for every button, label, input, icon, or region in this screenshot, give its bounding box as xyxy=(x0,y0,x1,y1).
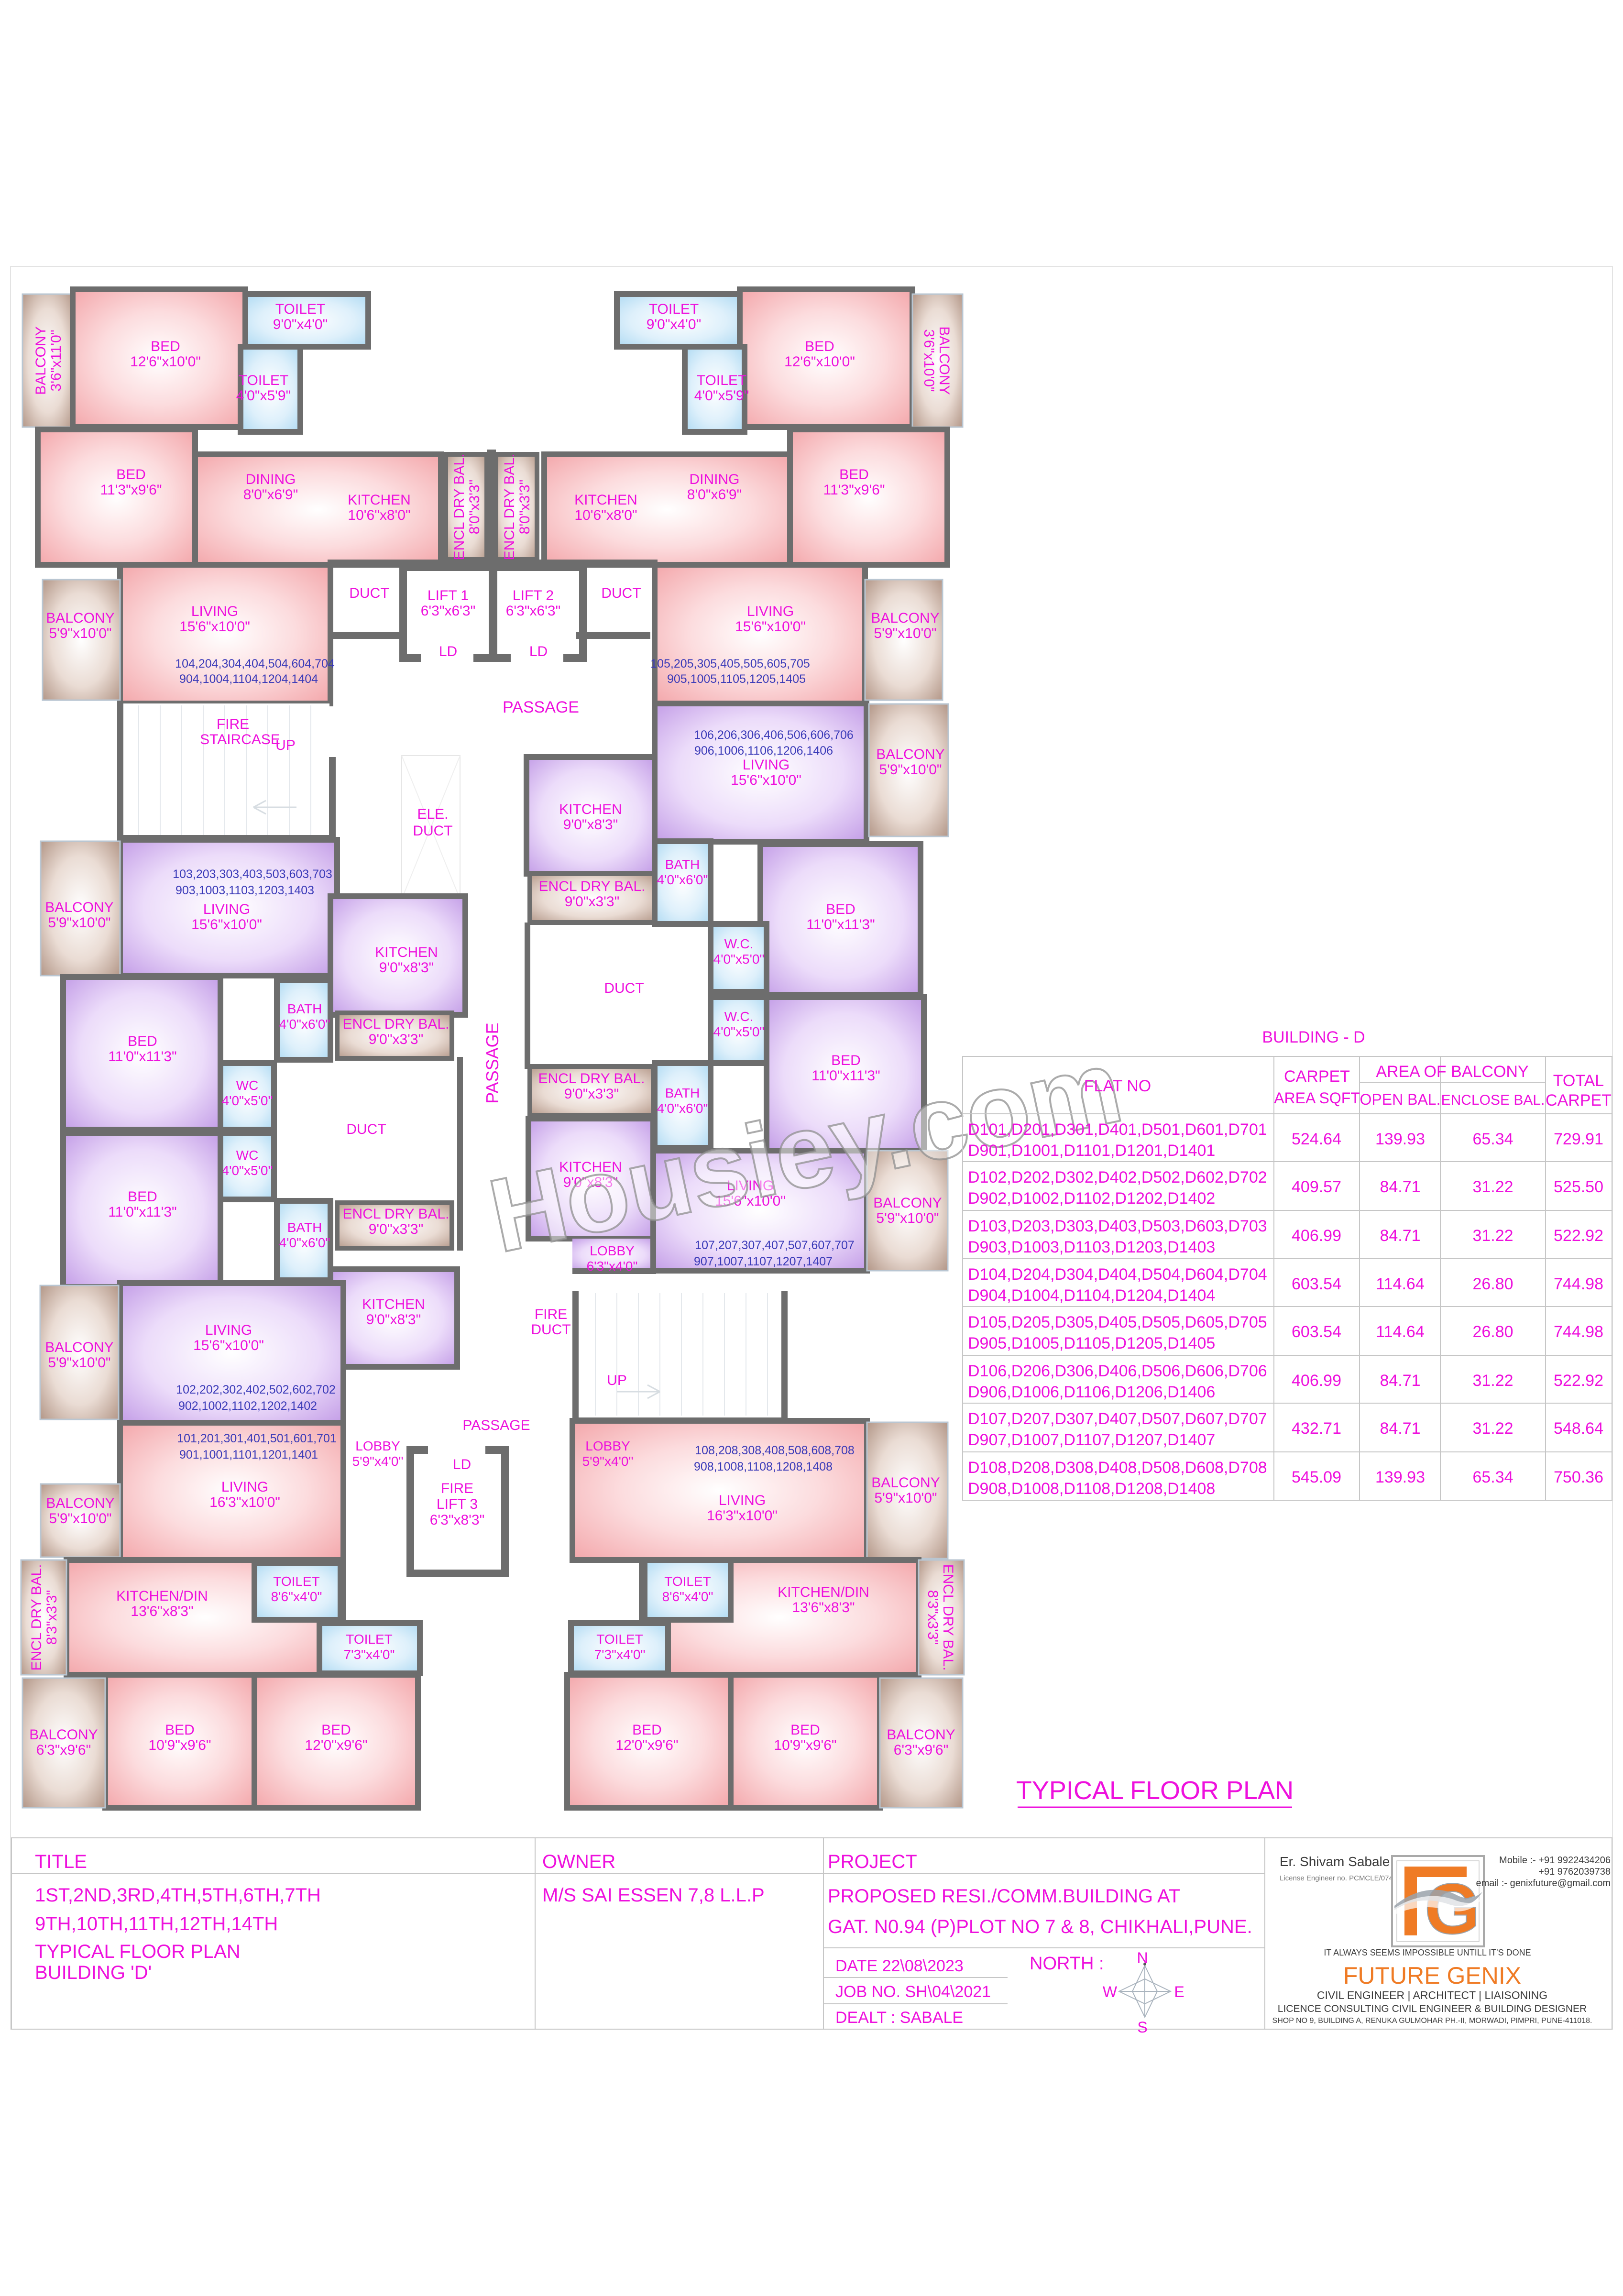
svg-text:Mobile :- +91 9922434206: Mobile :- +91 9922434206 xyxy=(1499,1855,1611,1866)
svg-text:101,201,301,401,501,601,701: 101,201,301,401,501,601,701 xyxy=(177,1432,337,1445)
svg-text:TOILET: TOILET xyxy=(697,373,746,388)
svg-text:5'9"x10'0": 5'9"x10'0" xyxy=(874,626,936,641)
svg-text:105,205,305,405,505,605,705: 105,205,305,405,505,605,705 xyxy=(650,657,810,670)
svg-text:FLAT NO: FLAT NO xyxy=(1084,1077,1151,1095)
svg-text:BALCONY: BALCONY xyxy=(887,1727,955,1743)
svg-text:DUCT: DUCT xyxy=(531,1322,570,1338)
svg-text:AREA OF BALCONY: AREA OF BALCONY xyxy=(1376,1063,1528,1081)
svg-text:139.93: 139.93 xyxy=(1375,1130,1425,1148)
svg-text:8'3"x3'3": 8'3"x3'3" xyxy=(925,1590,941,1645)
svg-text:D901,D1001,D1101,D1201,D1401: D901,D1001,D1101,D1201,D1401 xyxy=(968,1142,1215,1160)
svg-text:DINING: DINING xyxy=(690,472,740,487)
svg-text:GAT. N0.94 (P)PLOT NO 7 & 8, C: GAT. N0.94 (P)PLOT NO 7 & 8, CHIKHALI,PU… xyxy=(828,1916,1252,1937)
svg-text:15'6"x10'0": 15'6"x10'0" xyxy=(193,1338,264,1353)
svg-text:CARPET: CARPET xyxy=(1546,1091,1612,1110)
svg-text:114.64: 114.64 xyxy=(1376,1275,1424,1293)
svg-text:AREA SQFT: AREA SQFT xyxy=(1274,1089,1360,1107)
svg-text:9'0"x3'3": 9'0"x3'3" xyxy=(369,1221,424,1237)
svg-text:W: W xyxy=(1103,1983,1118,2000)
svg-text:BUILDING - D: BUILDING - D xyxy=(1262,1028,1365,1046)
svg-text:908,1008,1108,1208,1408: 908,1008,1108,1208,1408 xyxy=(694,1460,833,1473)
svg-text:432.71: 432.71 xyxy=(1292,1419,1341,1438)
svg-text:603.54: 603.54 xyxy=(1292,1275,1341,1293)
svg-text:9'0"x3'3": 9'0"x3'3" xyxy=(564,1086,619,1102)
svg-text:BALCONY: BALCONY xyxy=(29,1727,98,1743)
svg-text:D106,D206,D306,D406,D506,D606,: D106,D206,D306,D406,D506,D606,D706 xyxy=(968,1362,1267,1380)
svg-text:D104,D204,D304,D404,D504,D604,: D104,D204,D304,D404,D504,D604,D704 xyxy=(968,1265,1267,1284)
svg-text:522.92: 522.92 xyxy=(1554,1227,1603,1245)
svg-text:LD: LD xyxy=(453,1457,471,1472)
svg-text:114.64: 114.64 xyxy=(1376,1323,1424,1341)
svg-text:PASSAGE: PASSAGE xyxy=(503,698,579,716)
svg-text:BED: BED xyxy=(826,901,855,917)
svg-text:ENCL DRY BAL.: ENCL DRY BAL. xyxy=(29,1564,44,1671)
svg-text:BATH: BATH xyxy=(665,1086,700,1100)
svg-text:BED: BED xyxy=(805,339,834,354)
svg-text:BALCONY: BALCONY xyxy=(871,610,939,626)
svg-text:W.C.: W.C. xyxy=(724,936,754,951)
svg-text:OPEN BAL.: OPEN BAL. xyxy=(1360,1091,1441,1108)
svg-text:26.80: 26.80 xyxy=(1472,1323,1513,1341)
svg-text:9'0"x8'3": 9'0"x8'3" xyxy=(366,1312,421,1328)
svg-text:902,1002,1102,1202,1402: 902,1002,1102,1202,1402 xyxy=(178,1399,317,1413)
svg-text:6'3"x8'3": 6'3"x8'3" xyxy=(430,1512,485,1528)
svg-text:ENCL DRY BAL.: ENCL DRY BAL. xyxy=(502,454,517,560)
svg-text:IT ALWAYS SEEMS IMPOSSIBLE UNT: IT ALWAYS SEEMS IMPOSSIBLE UNTILL IT'S D… xyxy=(1324,1948,1531,1957)
svg-text:LD: LD xyxy=(529,644,548,659)
svg-text:LIVING: LIVING xyxy=(743,757,790,773)
svg-text:D103,D203,D303,D403,D503,D603,: D103,D203,D303,D403,D503,D603,D703 xyxy=(968,1217,1267,1235)
svg-text:License Engineer no. PCMCLE/07: License Engineer no. PCMCLE/0745 xyxy=(1280,1874,1397,1882)
svg-text:ENCL DRY BAL.: ENCL DRY BAL. xyxy=(538,1071,645,1087)
svg-text:905,1005,1105,1205,1405: 905,1005,1105,1205,1405 xyxy=(667,672,806,686)
svg-text:12'6"x10'0": 12'6"x10'0" xyxy=(130,354,201,370)
svg-text:LIVING: LIVING xyxy=(719,1493,766,1508)
svg-text:16'3"x10'0": 16'3"x10'0" xyxy=(707,1508,778,1524)
svg-text:TYPICAL FLOOR PLAN: TYPICAL FLOOR PLAN xyxy=(35,1941,241,1962)
svg-text:ELE.: ELE. xyxy=(417,806,448,822)
svg-text:8'6"x4'0": 8'6"x4'0" xyxy=(271,1589,322,1604)
svg-text:4'0"x5'0": 4'0"x5'0" xyxy=(222,1093,273,1108)
svg-text:6'3"x4'0": 6'3"x4'0" xyxy=(587,1259,638,1274)
svg-text:903,1003,1103,1203,1403: 903,1003,1103,1203,1403 xyxy=(175,884,314,897)
svg-text:DUCT: DUCT xyxy=(346,1121,386,1137)
svg-text:6'3"x9'6": 6'3"x9'6" xyxy=(36,1742,91,1758)
svg-text:TOILET: TOILET xyxy=(275,301,325,317)
svg-text:409.57: 409.57 xyxy=(1292,1178,1341,1196)
svg-text:ENCL DRY BAL.: ENCL DRY BAL. xyxy=(940,1564,956,1671)
svg-text:ENCL DRY BAL.: ENCL DRY BAL. xyxy=(539,879,646,894)
svg-text:LIVING: LIVING xyxy=(205,1322,252,1338)
svg-text:LICENCE CONSULTING CIVIL ENGIN: LICENCE CONSULTING CIVIL ENGINEER & BUIL… xyxy=(1278,2003,1587,2014)
svg-text:11'3"x9'6": 11'3"x9'6" xyxy=(100,482,162,498)
svg-text:TITLE: TITLE xyxy=(35,1851,87,1872)
svg-text:15'6"x10'0": 15'6"x10'0" xyxy=(191,917,262,933)
svg-text:5'9"x10'0": 5'9"x10'0" xyxy=(879,762,942,778)
svg-text:DATE 22\08\2023: DATE 22\08\2023 xyxy=(835,1957,964,1975)
svg-text:4'0"x5'0": 4'0"x5'0" xyxy=(713,1024,765,1039)
svg-text:LIFT 1: LIFT 1 xyxy=(428,588,469,604)
svg-text:13'6"x8'3": 13'6"x8'3" xyxy=(131,1604,193,1619)
svg-text:DUCT: DUCT xyxy=(604,980,644,996)
svg-text:901,1001,1101,1201,1401: 901,1001,1101,1201,1401 xyxy=(179,1448,318,1461)
svg-text:JOB NO. SH\04\2021: JOB NO. SH\04\2021 xyxy=(835,1983,991,2001)
svg-text:LOBBY: LOBBY xyxy=(585,1439,630,1453)
svg-text:STAIRCASE: STAIRCASE xyxy=(200,732,280,747)
svg-text:PASSAGE: PASSAGE xyxy=(462,1417,530,1433)
svg-text:D905,D1005,D1105,D1205,D1405: D905,D1005,D1105,D1205,D1405 xyxy=(968,1334,1215,1352)
svg-text:8'0"x6'9": 8'0"x6'9" xyxy=(687,487,742,503)
svg-text:5'9"x10'0": 5'9"x10'0" xyxy=(48,915,110,931)
svg-text:5'9"x4'0": 5'9"x4'0" xyxy=(352,1454,404,1469)
svg-text:103,203,303,403,503,603,703: 103,203,303,403,503,603,703 xyxy=(173,868,332,881)
svg-text:TOTAL: TOTAL xyxy=(1553,1072,1604,1090)
svg-text:729.91: 729.91 xyxy=(1554,1130,1603,1148)
svg-text:9'0"x4'0": 9'0"x4'0" xyxy=(647,317,702,332)
svg-text:108,208,308,408,508,608,708: 108,208,308,408,508,608,708 xyxy=(695,1444,855,1457)
svg-text:7'3"x4'0": 7'3"x4'0" xyxy=(594,1647,646,1662)
svg-text:31.22: 31.22 xyxy=(1472,1227,1513,1245)
svg-text:744.98: 744.98 xyxy=(1554,1275,1603,1293)
svg-text:84.71: 84.71 xyxy=(1380,1419,1420,1438)
svg-text:N: N xyxy=(1137,1949,1148,1966)
svg-text:+91 9762039738: +91 9762039738 xyxy=(1538,1867,1611,1877)
svg-text:4'0"x5'9": 4'0"x5'9" xyxy=(694,388,749,404)
svg-text:31.22: 31.22 xyxy=(1472,1372,1513,1390)
svg-text:744.98: 744.98 xyxy=(1554,1323,1603,1341)
svg-text:BED: BED xyxy=(632,1722,662,1738)
svg-text:BALCONY: BALCONY xyxy=(46,610,114,626)
svg-text:BALCONY: BALCONY xyxy=(876,747,944,762)
svg-text:DEALT : SABALE: DEALT : SABALE xyxy=(835,2009,963,2027)
svg-text:FIRE: FIRE xyxy=(441,1481,473,1496)
svg-text:PROJECT: PROJECT xyxy=(828,1851,917,1872)
svg-text:5'9"x10'0": 5'9"x10'0" xyxy=(874,1490,937,1506)
svg-text:65.34: 65.34 xyxy=(1472,1468,1513,1486)
svg-text:TOILET: TOILET xyxy=(273,1574,320,1589)
svg-text:11'3"x9'6": 11'3"x9'6" xyxy=(823,482,885,498)
svg-text:LIFT 2: LIFT 2 xyxy=(513,588,554,604)
svg-text:16'3"x10'0": 16'3"x10'0" xyxy=(209,1494,280,1510)
svg-text:12'6"x10'0": 12'6"x10'0" xyxy=(784,354,855,370)
svg-text:4'0"x6'0": 4'0"x6'0" xyxy=(657,872,708,887)
svg-text:102,202,302,402,502,602,702: 102,202,302,402,502,602,702 xyxy=(176,1383,336,1396)
svg-text:10'6"x8'0": 10'6"x8'0" xyxy=(574,507,637,523)
svg-text:84.71: 84.71 xyxy=(1380,1372,1420,1390)
svg-text:W.C.: W.C. xyxy=(724,1009,754,1024)
svg-text:750.36: 750.36 xyxy=(1554,1468,1603,1486)
svg-text:PASSAGE: PASSAGE xyxy=(483,1022,502,1103)
svg-text:OWNER: OWNER xyxy=(542,1851,615,1872)
svg-text:D907,D1007,D1107,D1207,D1407: D907,D1007,D1107,D1207,D1407 xyxy=(968,1431,1215,1449)
svg-text:BED: BED xyxy=(165,1722,195,1738)
svg-text:ENCL DRY BAL.: ENCL DRY BAL. xyxy=(343,1206,450,1222)
svg-text:104,204,304,404,504,604,704: 104,204,304,404,504,604,704 xyxy=(175,657,335,670)
svg-text:6'3"x6'3": 6'3"x6'3" xyxy=(421,603,476,619)
svg-text:DUCT: DUCT xyxy=(413,823,452,839)
svg-text:26.80: 26.80 xyxy=(1472,1275,1513,1293)
svg-text:ENCL DRY BAL.: ENCL DRY BAL. xyxy=(343,1016,450,1032)
svg-text:TYPICAL FLOOR PLAN: TYPICAL FLOOR PLAN xyxy=(1016,1776,1294,1805)
svg-text:5'9"x10'0": 5'9"x10'0" xyxy=(49,1511,111,1527)
svg-text:D105,D205,D305,D405,D505,D605,: D105,D205,D305,D405,D505,D605,D705 xyxy=(968,1313,1267,1331)
svg-text:BED: BED xyxy=(116,467,146,483)
svg-text:BUILDING 'D': BUILDING 'D' xyxy=(35,1962,152,1983)
svg-text:522.92: 522.92 xyxy=(1554,1372,1603,1390)
svg-text:FIRE: FIRE xyxy=(217,716,249,732)
svg-text:BED: BED xyxy=(128,1189,157,1205)
svg-text:ENCL DRY BAL.: ENCL DRY BAL. xyxy=(451,454,467,560)
svg-text:31.22: 31.22 xyxy=(1472,1419,1513,1438)
svg-text:ENCLOSE BAL.: ENCLOSE BAL. xyxy=(1441,1092,1545,1108)
svg-text:CARPET: CARPET xyxy=(1284,1067,1350,1086)
svg-text:65.34: 65.34 xyxy=(1472,1130,1513,1148)
svg-text:NORTH :: NORTH : xyxy=(1030,1954,1104,1974)
svg-text:9'0"x3'3": 9'0"x3'3" xyxy=(369,1032,424,1047)
svg-text:BALCONY: BALCONY xyxy=(871,1475,940,1491)
svg-text:8'0"x3'3": 8'0"x3'3" xyxy=(517,480,533,535)
svg-text:LD: LD xyxy=(439,644,457,659)
svg-text:525.50: 525.50 xyxy=(1554,1178,1603,1196)
svg-text:SHOP NO 9, BUILDING A, RENUKA: SHOP NO 9, BUILDING A, RENUKA GULMOHAR P… xyxy=(1272,2017,1592,2025)
svg-text:D908,D1008,D1108,D1208,D1408: D908,D1008,D1108,D1208,D1408 xyxy=(968,1480,1215,1498)
svg-text:9'0"x4'0": 9'0"x4'0" xyxy=(273,317,328,332)
svg-text:BALCONY: BALCONY xyxy=(936,326,952,395)
svg-text:4'0"x6'0": 4'0"x6'0" xyxy=(279,1235,330,1250)
svg-text:DUCT: DUCT xyxy=(349,585,389,601)
svg-text:UP: UP xyxy=(607,1373,627,1388)
svg-text:8'6"x4'0": 8'6"x4'0" xyxy=(662,1589,713,1604)
svg-text:4'0"x5'0": 4'0"x5'0" xyxy=(222,1163,273,1178)
svg-text:84.71: 84.71 xyxy=(1380,1227,1420,1245)
svg-text:KITCHEN/DIN: KITCHEN/DIN xyxy=(778,1584,869,1600)
svg-text:D107,D207,D307,D407,D507,D607,: D107,D207,D307,D407,D507,D607,D707 xyxy=(968,1410,1267,1428)
svg-text:6'3"x9'6": 6'3"x9'6" xyxy=(894,1742,949,1758)
svg-text:BED: BED xyxy=(151,339,180,354)
svg-text:TOILET: TOILET xyxy=(346,1632,393,1647)
svg-text:5'9"x10'0": 5'9"x10'0" xyxy=(876,1210,939,1226)
svg-text:BATH: BATH xyxy=(287,1001,322,1016)
svg-text:KITCHEN: KITCHEN xyxy=(559,802,622,817)
svg-text:907,1007,1107,1207,1407: 907,1007,1107,1207,1407 xyxy=(694,1255,833,1268)
svg-text:524.64: 524.64 xyxy=(1292,1130,1341,1148)
svg-text:11'0"x11'3": 11'0"x11'3" xyxy=(108,1204,176,1220)
svg-text:LIVING: LIVING xyxy=(203,901,250,917)
svg-text:31.22: 31.22 xyxy=(1472,1178,1513,1196)
svg-text:E: E xyxy=(1174,1983,1184,2000)
svg-text:D101,D201,D301,D401,D501,D601,: D101,D201,D301,D401,D501,D601,D701 xyxy=(968,1121,1267,1139)
svg-text:KITCHEN: KITCHEN xyxy=(375,945,438,960)
svg-text:LOBBY: LOBBY xyxy=(355,1439,400,1453)
svg-text:107,207,307,407,507,607,707: 107,207,307,407,507,607,707 xyxy=(695,1239,855,1252)
svg-text:BATH: BATH xyxy=(665,857,700,872)
svg-text:9TH,10TH,11TH,12TH,14TH: 9TH,10TH,11TH,12TH,14TH xyxy=(35,1913,278,1934)
svg-text:D102,D202,D302,D402,D502,D602,: D102,D202,D302,D402,D502,D602,D702 xyxy=(968,1168,1267,1186)
svg-text:Er. Shivam Sabale: Er. Shivam Sabale xyxy=(1280,1854,1390,1869)
svg-text:FUTURE GENIX: FUTURE GENIX xyxy=(1343,1962,1521,1989)
svg-text:KITCHEN/DIN: KITCHEN/DIN xyxy=(116,1588,208,1604)
svg-text:5'9"x4'0": 5'9"x4'0" xyxy=(582,1454,634,1469)
svg-text:BALCONY: BALCONY xyxy=(33,326,49,395)
svg-text:email :- genixfuture@gmail.com: email :- genixfuture@gmail.com xyxy=(1476,1878,1611,1889)
svg-text:D906,D1006,D1106,D1206,D1406: D906,D1006,D1106,D1206,D1406 xyxy=(968,1383,1215,1401)
svg-text:106,206,306,406,506,606,706: 106,206,306,406,506,606,706 xyxy=(694,728,854,742)
svg-text:84.71: 84.71 xyxy=(1380,1178,1420,1196)
svg-text:D903,D1003,D1103,D1203,D1403: D903,D1003,D1103,D1203,D1403 xyxy=(968,1238,1215,1256)
svg-text:BALCONY: BALCONY xyxy=(45,900,113,915)
svg-text:BATH: BATH xyxy=(287,1220,322,1235)
svg-text:10'9"x9'6": 10'9"x9'6" xyxy=(774,1737,836,1753)
svg-text:904,1004,1104,1204,1404: 904,1004,1104,1204,1404 xyxy=(179,672,318,686)
svg-text:11'0"x11'3": 11'0"x11'3" xyxy=(108,1049,176,1065)
svg-text:D108,D208,D308,D408,D508,D608,: D108,D208,D308,D408,D508,D608,D708 xyxy=(968,1459,1267,1477)
svg-text:545.09: 545.09 xyxy=(1292,1468,1341,1486)
svg-text:TOILET: TOILET xyxy=(649,301,699,317)
svg-text:9'0"x8'3": 9'0"x8'3" xyxy=(563,817,618,833)
svg-text:KITCHEN: KITCHEN xyxy=(348,492,411,508)
svg-text:1ST,2ND,3RD,4TH,5TH,6TH,7TH: 1ST,2ND,3RD,4TH,5TH,6TH,7TH xyxy=(35,1885,321,1906)
svg-text:WC: WC xyxy=(236,1078,259,1093)
svg-text:5'9"x10'0": 5'9"x10'0" xyxy=(49,626,111,641)
svg-text:15'6"x10'0": 15'6"x10'0" xyxy=(179,619,250,635)
svg-text:5'9"x10'0": 5'9"x10'0" xyxy=(48,1355,110,1371)
svg-text:4'0"x5'0": 4'0"x5'0" xyxy=(713,952,765,967)
svg-text:9'0"x8'3": 9'0"x8'3" xyxy=(379,960,434,976)
svg-text:LIVING: LIVING xyxy=(191,604,238,619)
svg-text:15'6"x10'0": 15'6"x10'0" xyxy=(735,619,806,635)
svg-text:BED: BED xyxy=(839,467,869,483)
svg-text:WC: WC xyxy=(236,1148,259,1163)
svg-text:3'6"x11'0": 3'6"x11'0" xyxy=(48,330,64,392)
svg-text:M/S SAI ESSEN 7,8 L.L.P: M/S SAI ESSEN 7,8 L.L.P xyxy=(542,1885,765,1906)
svg-text:8'0"x6'9": 8'0"x6'9" xyxy=(243,487,298,503)
svg-text:FIRE: FIRE xyxy=(535,1307,567,1322)
svg-text:DUCT: DUCT xyxy=(601,585,641,601)
svg-text:139.93: 139.93 xyxy=(1375,1468,1425,1486)
svg-text:UP: UP xyxy=(275,737,296,753)
svg-text:BALCONY: BALCONY xyxy=(46,1495,114,1511)
svg-text:S: S xyxy=(1137,2019,1147,2036)
svg-text:LIVING: LIVING xyxy=(221,1479,268,1495)
svg-text:8'3"x3'3": 8'3"x3'3" xyxy=(44,1590,60,1645)
svg-text:10'9"x9'6": 10'9"x9'6" xyxy=(148,1737,211,1753)
svg-text:DINING: DINING xyxy=(246,472,296,487)
svg-text:9'0"x3'3": 9'0"x3'3" xyxy=(565,894,620,910)
svg-text:BALCONY: BALCONY xyxy=(45,1340,113,1355)
svg-text:406.99: 406.99 xyxy=(1292,1372,1341,1390)
svg-text:15'6"x10'0": 15'6"x10'0" xyxy=(731,772,801,788)
svg-text:4'0"x5'9": 4'0"x5'9" xyxy=(236,388,291,404)
svg-text:KITCHEN: KITCHEN xyxy=(362,1296,425,1312)
svg-text:406.99: 406.99 xyxy=(1292,1227,1341,1245)
svg-text:PROPOSED RESI./COMM.BUILDING A: PROPOSED RESI./COMM.BUILDING AT xyxy=(828,1886,1180,1907)
svg-text:LIFT 3: LIFT 3 xyxy=(437,1496,478,1512)
svg-text:LIVING: LIVING xyxy=(747,604,794,619)
svg-text:603.54: 603.54 xyxy=(1292,1323,1341,1341)
svg-text:10'6"x8'0": 10'6"x8'0" xyxy=(348,507,410,523)
svg-text:12'0"x9'6": 12'0"x9'6" xyxy=(305,1737,367,1753)
svg-text:BED: BED xyxy=(831,1053,861,1068)
svg-text:906,1006,1106,1206,1406: 906,1006,1106,1206,1406 xyxy=(694,744,833,758)
svg-text:12'0"x9'6": 12'0"x9'6" xyxy=(615,1737,678,1753)
svg-text:BALCONY: BALCONY xyxy=(873,1195,942,1211)
svg-text:TOILET: TOILET xyxy=(596,1632,643,1647)
svg-text:BED: BED xyxy=(128,1033,157,1049)
svg-text:7'3"x4'0": 7'3"x4'0" xyxy=(344,1647,395,1662)
svg-text:4'0"x6'0": 4'0"x6'0" xyxy=(279,1017,330,1032)
svg-text:TOILET: TOILET xyxy=(239,373,288,388)
svg-text:13'6"x8'3": 13'6"x8'3" xyxy=(792,1600,855,1615)
svg-text:8'0"x3'3": 8'0"x3'3" xyxy=(467,480,483,535)
svg-text:3'6"x10'0": 3'6"x10'0" xyxy=(921,329,937,392)
svg-text:6'3"x6'3": 6'3"x6'3" xyxy=(506,603,561,619)
svg-text:BED: BED xyxy=(321,1722,351,1738)
svg-text:D902,D1002,D1102,D1202,D1402: D902,D1002,D1102,D1202,D1402 xyxy=(968,1189,1215,1208)
svg-text:KITCHEN: KITCHEN xyxy=(574,492,637,508)
svg-text:548.64: 548.64 xyxy=(1554,1419,1603,1438)
svg-text:D904,D1004,D1104,D1204,D1404: D904,D1004,D1104,D1204,D1404 xyxy=(968,1286,1215,1305)
svg-text:TOILET: TOILET xyxy=(664,1574,711,1589)
svg-text:11'0"x11'3": 11'0"x11'3" xyxy=(806,917,875,933)
svg-text:4'0"x6'0": 4'0"x6'0" xyxy=(657,1101,708,1116)
svg-text:CIVIL ENGINEER | ARCHITECT | L: CIVIL ENGINEER | ARCHITECT | LIAISONING xyxy=(1317,1989,1547,2001)
svg-text:BED: BED xyxy=(790,1722,820,1738)
